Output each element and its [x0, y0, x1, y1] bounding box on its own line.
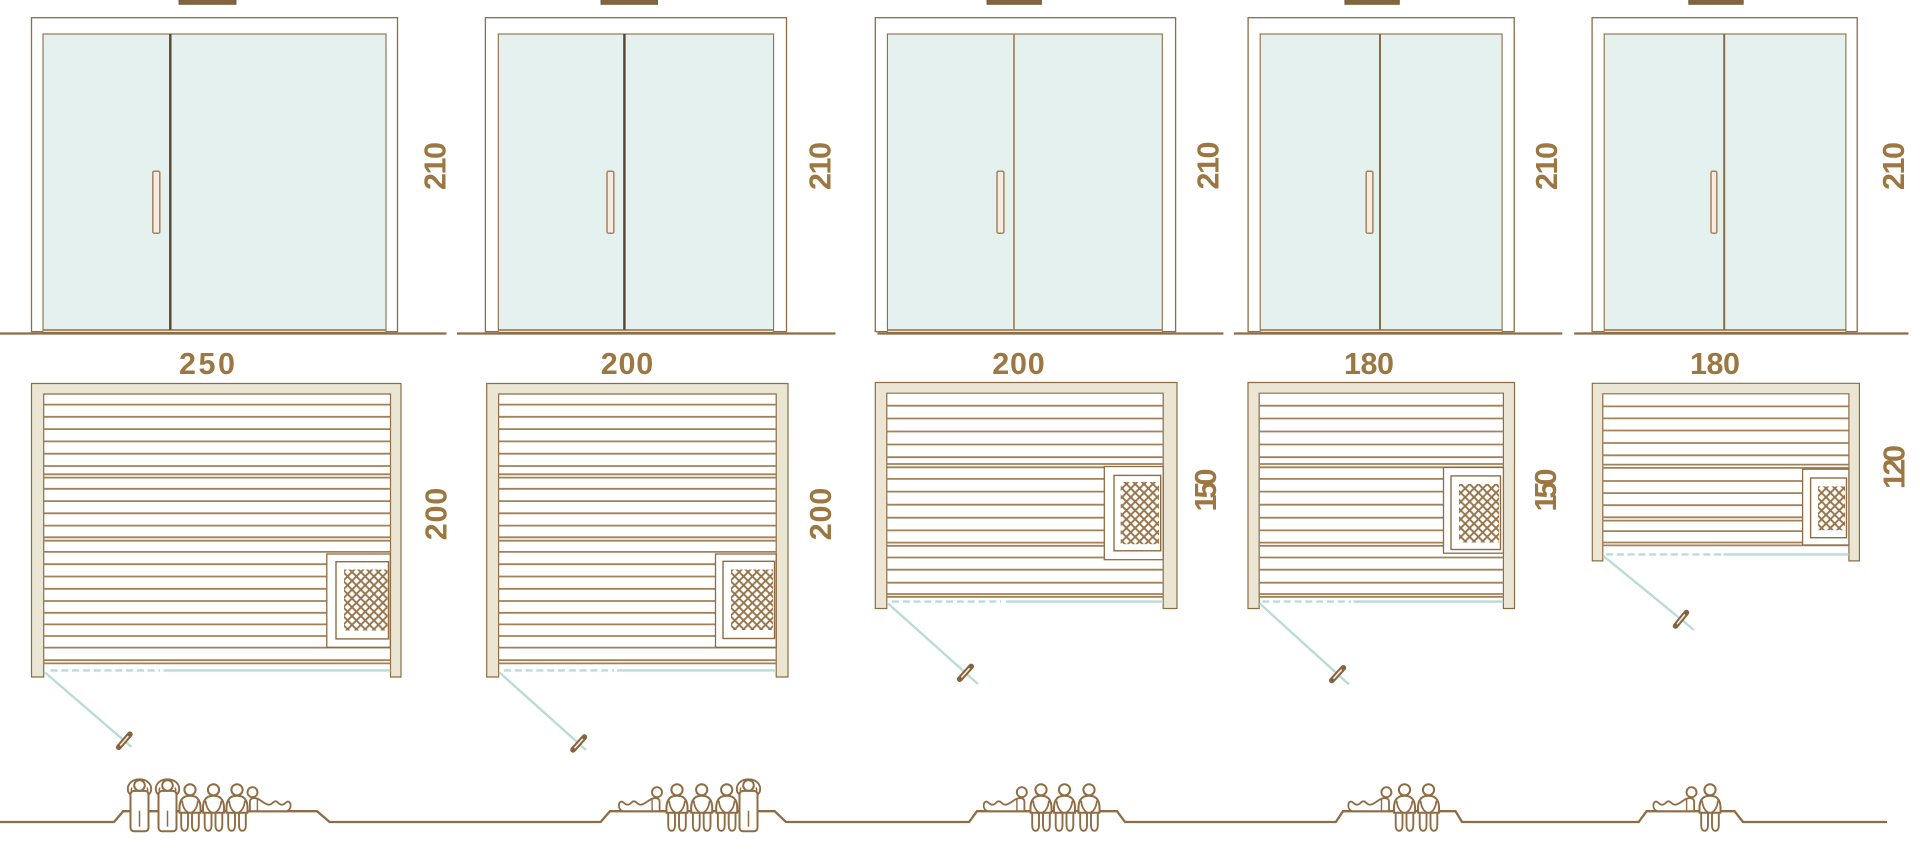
svg-text:210: 210	[1877, 142, 1911, 190]
svg-text:210: 210	[1192, 142, 1226, 190]
svg-text:120: 120	[1878, 445, 1912, 489]
svg-text:250: 250	[179, 347, 235, 381]
svg-text:180: 180	[1690, 347, 1740, 381]
svg-text:200: 200	[992, 347, 1045, 381]
svg-text:180: 180	[1344, 347, 1394, 381]
svg-text:150: 150	[1529, 469, 1563, 512]
svg-text:200: 200	[804, 488, 838, 541]
svg-text:210: 210	[1530, 142, 1564, 190]
svg-text:210: 210	[419, 142, 453, 190]
svg-text:200: 200	[420, 488, 454, 541]
svg-text:210: 210	[804, 142, 838, 190]
svg-text:150: 150	[1189, 469, 1223, 512]
svg-text:200: 200	[601, 347, 654, 381]
